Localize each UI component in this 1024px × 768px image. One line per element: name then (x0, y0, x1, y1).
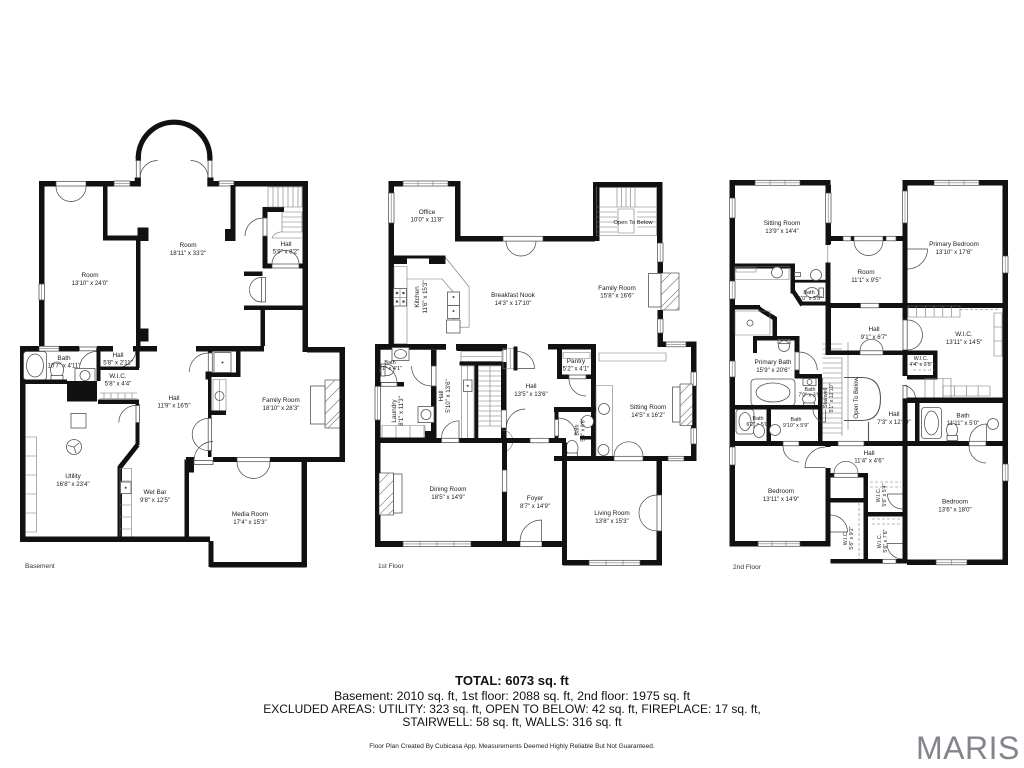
svg-text:13'10" x 17'6": 13'10" x 17'6" (936, 249, 973, 256)
svg-text:Hall: Hall (280, 241, 291, 248)
svg-text:13'8" x 15'3": 13'8" x 15'3" (595, 518, 628, 525)
svg-text:Open To Below: Open To Below (853, 377, 860, 419)
svg-text:Sitting Room: Sitting Room (764, 220, 801, 227)
svg-text:11'1" x 9'5": 11'1" x 9'5" (851, 277, 881, 284)
svg-text:15'8" x 16'6": 15'8" x 16'6" (600, 293, 633, 300)
svg-text:5'8" x 4'4": 5'8" x 4'4" (105, 381, 132, 388)
svg-text:Hall: Hall (168, 395, 179, 402)
svg-text:Primary Bedroom: Primary Bedroom (929, 241, 979, 248)
svg-text:Hall: Hall (888, 411, 899, 418)
svg-text:1st Floor: 1st Floor (378, 563, 404, 570)
svg-text:11'6" x 15'3": 11'6" x 15'3" (422, 281, 429, 314)
svg-text:Dining Room: Dining Room (430, 486, 467, 493)
svg-text:13'10" x 24'0": 13'10" x 24'0" (72, 280, 109, 287)
svg-text:Media Room: Media Room (232, 511, 268, 518)
svg-text:13'11" x 14'9": 13'11" x 14'9" (763, 496, 799, 503)
svg-text:9'8" x 12'5": 9'8" x 12'5" (140, 497, 170, 504)
svg-text:10'7" x 4'11": 10'7" x 4'11" (48, 363, 81, 370)
svg-text:18'5" x 14'9": 18'5" x 14'9" (431, 494, 464, 501)
svg-text:Basement: Basement (25, 563, 55, 570)
svg-text:8'1" x 11'3": 8'1" x 11'3" (398, 396, 405, 426)
svg-text:Hall: Hall (868, 326, 879, 333)
svg-text:W.I.C.: W.I.C. (955, 331, 973, 338)
svg-text:Laundry: Laundry (391, 399, 398, 423)
svg-text:5'6" x 5'4": 5'6" x 5'4" (882, 483, 888, 506)
svg-text:13'6" x 18'0": 13'6" x 18'0" (938, 507, 971, 514)
svg-text:Family Room: Family Room (598, 285, 636, 292)
svg-text:14'5" x 16'2": 14'5" x 16'2" (631, 412, 664, 419)
svg-text:5'6" x 9'2": 5'6" x 9'2" (849, 526, 855, 549)
svg-text:11'11" x 5'0": 11'11" x 5'0" (947, 420, 980, 427)
svg-text:Open To Below: Open To Below (613, 220, 653, 226)
svg-text:Primary Bath: Primary Bath (755, 359, 792, 366)
svg-text:5'2" x 4'1": 5'2" x 4'1" (563, 366, 590, 373)
svg-text:13'5" x 13'6": 13'5" x 13'6" (514, 391, 547, 398)
svg-text:Bedroom: Bedroom (768, 488, 794, 495)
svg-text:11'9" x 16'5": 11'9" x 16'5" (158, 403, 191, 410)
svg-text:Wet Bar: Wet Bar (144, 489, 168, 496)
svg-text:Hall: Hall (525, 383, 536, 390)
svg-text:15'9" x 20'6": 15'9" x 20'6" (756, 367, 789, 374)
svg-text:Pantry: Pantry (567, 358, 586, 365)
svg-text:Room: Room (857, 269, 874, 276)
svg-text:14'3" x 17'10": 14'3" x 17'10" (495, 300, 532, 307)
svg-text:4'4" x 3'5": 4'4" x 3'5" (909, 362, 932, 368)
svg-text:Family Room: Family Room (262, 397, 300, 404)
svg-text:Hall: Hall (112, 352, 123, 359)
svg-text:16'8" x 23'4": 16'8" x 23'4" (56, 481, 89, 488)
svg-text:Breakfast Nook: Breakfast Nook (491, 292, 535, 299)
svg-text:Utility: Utility (65, 473, 81, 480)
svg-text:13'9" x 14'4": 13'9" x 14'4" (765, 228, 798, 235)
svg-text:W.I.C.: W.I.C. (109, 373, 127, 380)
svg-text:Hall: Hall (863, 450, 874, 457)
svg-text:5'4" x 9'6": 5'4" x 9'6" (581, 418, 587, 441)
svg-text:13'11" x 14'5": 13'11" x 14'5" (946, 339, 982, 346)
svg-text:Bath: Bath (956, 413, 970, 420)
svg-text:Office: Office (419, 209, 436, 216)
svg-text:6'0" x 3'5": 6'0" x 3'5" (798, 296, 822, 302)
svg-text:Hall: Hall (438, 390, 445, 401)
svg-text:9'10" x 5'9": 9'10" x 5'9" (783, 423, 809, 429)
svg-text:9'1" x 6'7": 9'1" x 6'7" (861, 334, 888, 341)
svg-text:10'0" x 11'8": 10'0" x 11'8" (411, 217, 444, 224)
svg-text:2nd Floor: 2nd Floor (733, 564, 762, 571)
svg-text:Bath: Bath (57, 355, 71, 362)
svg-text:5'8" x 2'11": 5'8" x 2'11" (103, 360, 133, 367)
svg-text:5'1" x 12'10": 5'1" x 12'10" (829, 383, 835, 412)
svg-text:Bedroom: Bedroom (942, 499, 968, 506)
svg-text:Foyer: Foyer (527, 495, 544, 502)
svg-text:18'11" x 33'2": 18'11" x 33'2" (170, 250, 206, 257)
svg-text:Kitchen: Kitchen (414, 286, 421, 308)
svg-text:Sitting Room: Sitting Room (630, 404, 667, 411)
svg-text:11'4" x 4'6": 11'4" x 4'6" (854, 458, 884, 465)
svg-text:Room: Room (179, 242, 196, 249)
svg-text:8'7" x 14'9": 8'7" x 14'9" (520, 503, 550, 510)
svg-text:Living Room: Living Room (594, 510, 630, 517)
svg-text:Room: Room (81, 272, 98, 279)
svg-text:5'10" x 13'6": 5'10" x 13'6" (445, 379, 452, 412)
svg-text:18'10" x 28'3": 18'10" x 28'3" (263, 405, 300, 412)
svg-text:7'3" x 12'10": 7'3" x 12'10" (877, 419, 910, 426)
svg-text:17'4" x 15'3": 17'4" x 15'3" (233, 519, 266, 526)
